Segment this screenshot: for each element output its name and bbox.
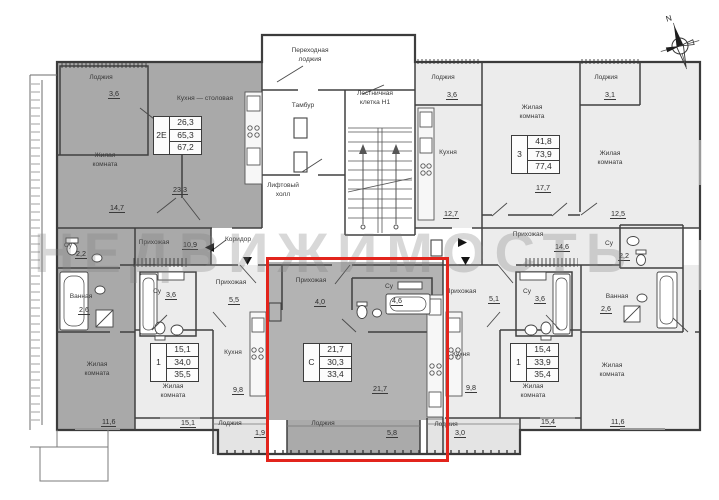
apartment-1-right-area-value: 35,4 <box>527 368 558 381</box>
apartment-2e-area-value: 26,3 <box>170 117 201 129</box>
apartment-2e-type: 2Е <box>154 117 170 154</box>
apartment-3-area-value: 73,9 <box>528 148 559 161</box>
apartment-3-type: 3 <box>512 136 528 173</box>
stairs <box>348 128 412 233</box>
floor-plan-page: НЕДВИЖИМОСТЬ Лоджия3,6Кухня — столовая23… <box>0 0 719 500</box>
apartment-1-right-type: 1 <box>511 344 527 381</box>
apartment-3-area-value: 77,4 <box>528 160 559 173</box>
apartment-1-left-area-value: 35,5 <box>167 368 198 381</box>
apartment-1-left-area-value: 15,1 <box>167 344 198 356</box>
apartment-1-left-type: 1 <box>151 344 167 381</box>
apartment-2e-area-value: 65,3 <box>170 129 201 142</box>
apartment-2e-area-value: 67,2 <box>170 141 201 154</box>
apartment-1-left-table: 115,134,035,5 <box>150 343 199 382</box>
apartment-1-right-table: 115,433,935,4 <box>510 343 559 382</box>
apartment-3-table: 341,873,977,4 <box>511 135 560 174</box>
apartment-2e-table: 2Е26,365,367,2 <box>153 116 202 155</box>
apartment-1-left-area-value: 34,0 <box>167 356 198 369</box>
apartment-1-right-area-value: 33,9 <box>527 356 558 369</box>
apartment-3-area-value: 41,8 <box>528 136 559 148</box>
selected-apartment-outline[interactable] <box>266 257 449 462</box>
apartment-1-right-area-value: 15,4 <box>527 344 558 356</box>
compass-icon: N <box>650 12 710 74</box>
